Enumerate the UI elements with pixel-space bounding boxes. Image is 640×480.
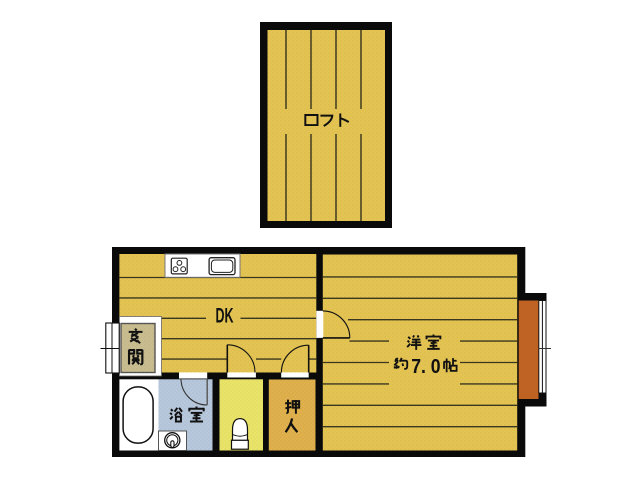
svg-text:DK: DK [216, 304, 234, 327]
svg-text:7. 0: 7. 0 [411, 355, 440, 378]
